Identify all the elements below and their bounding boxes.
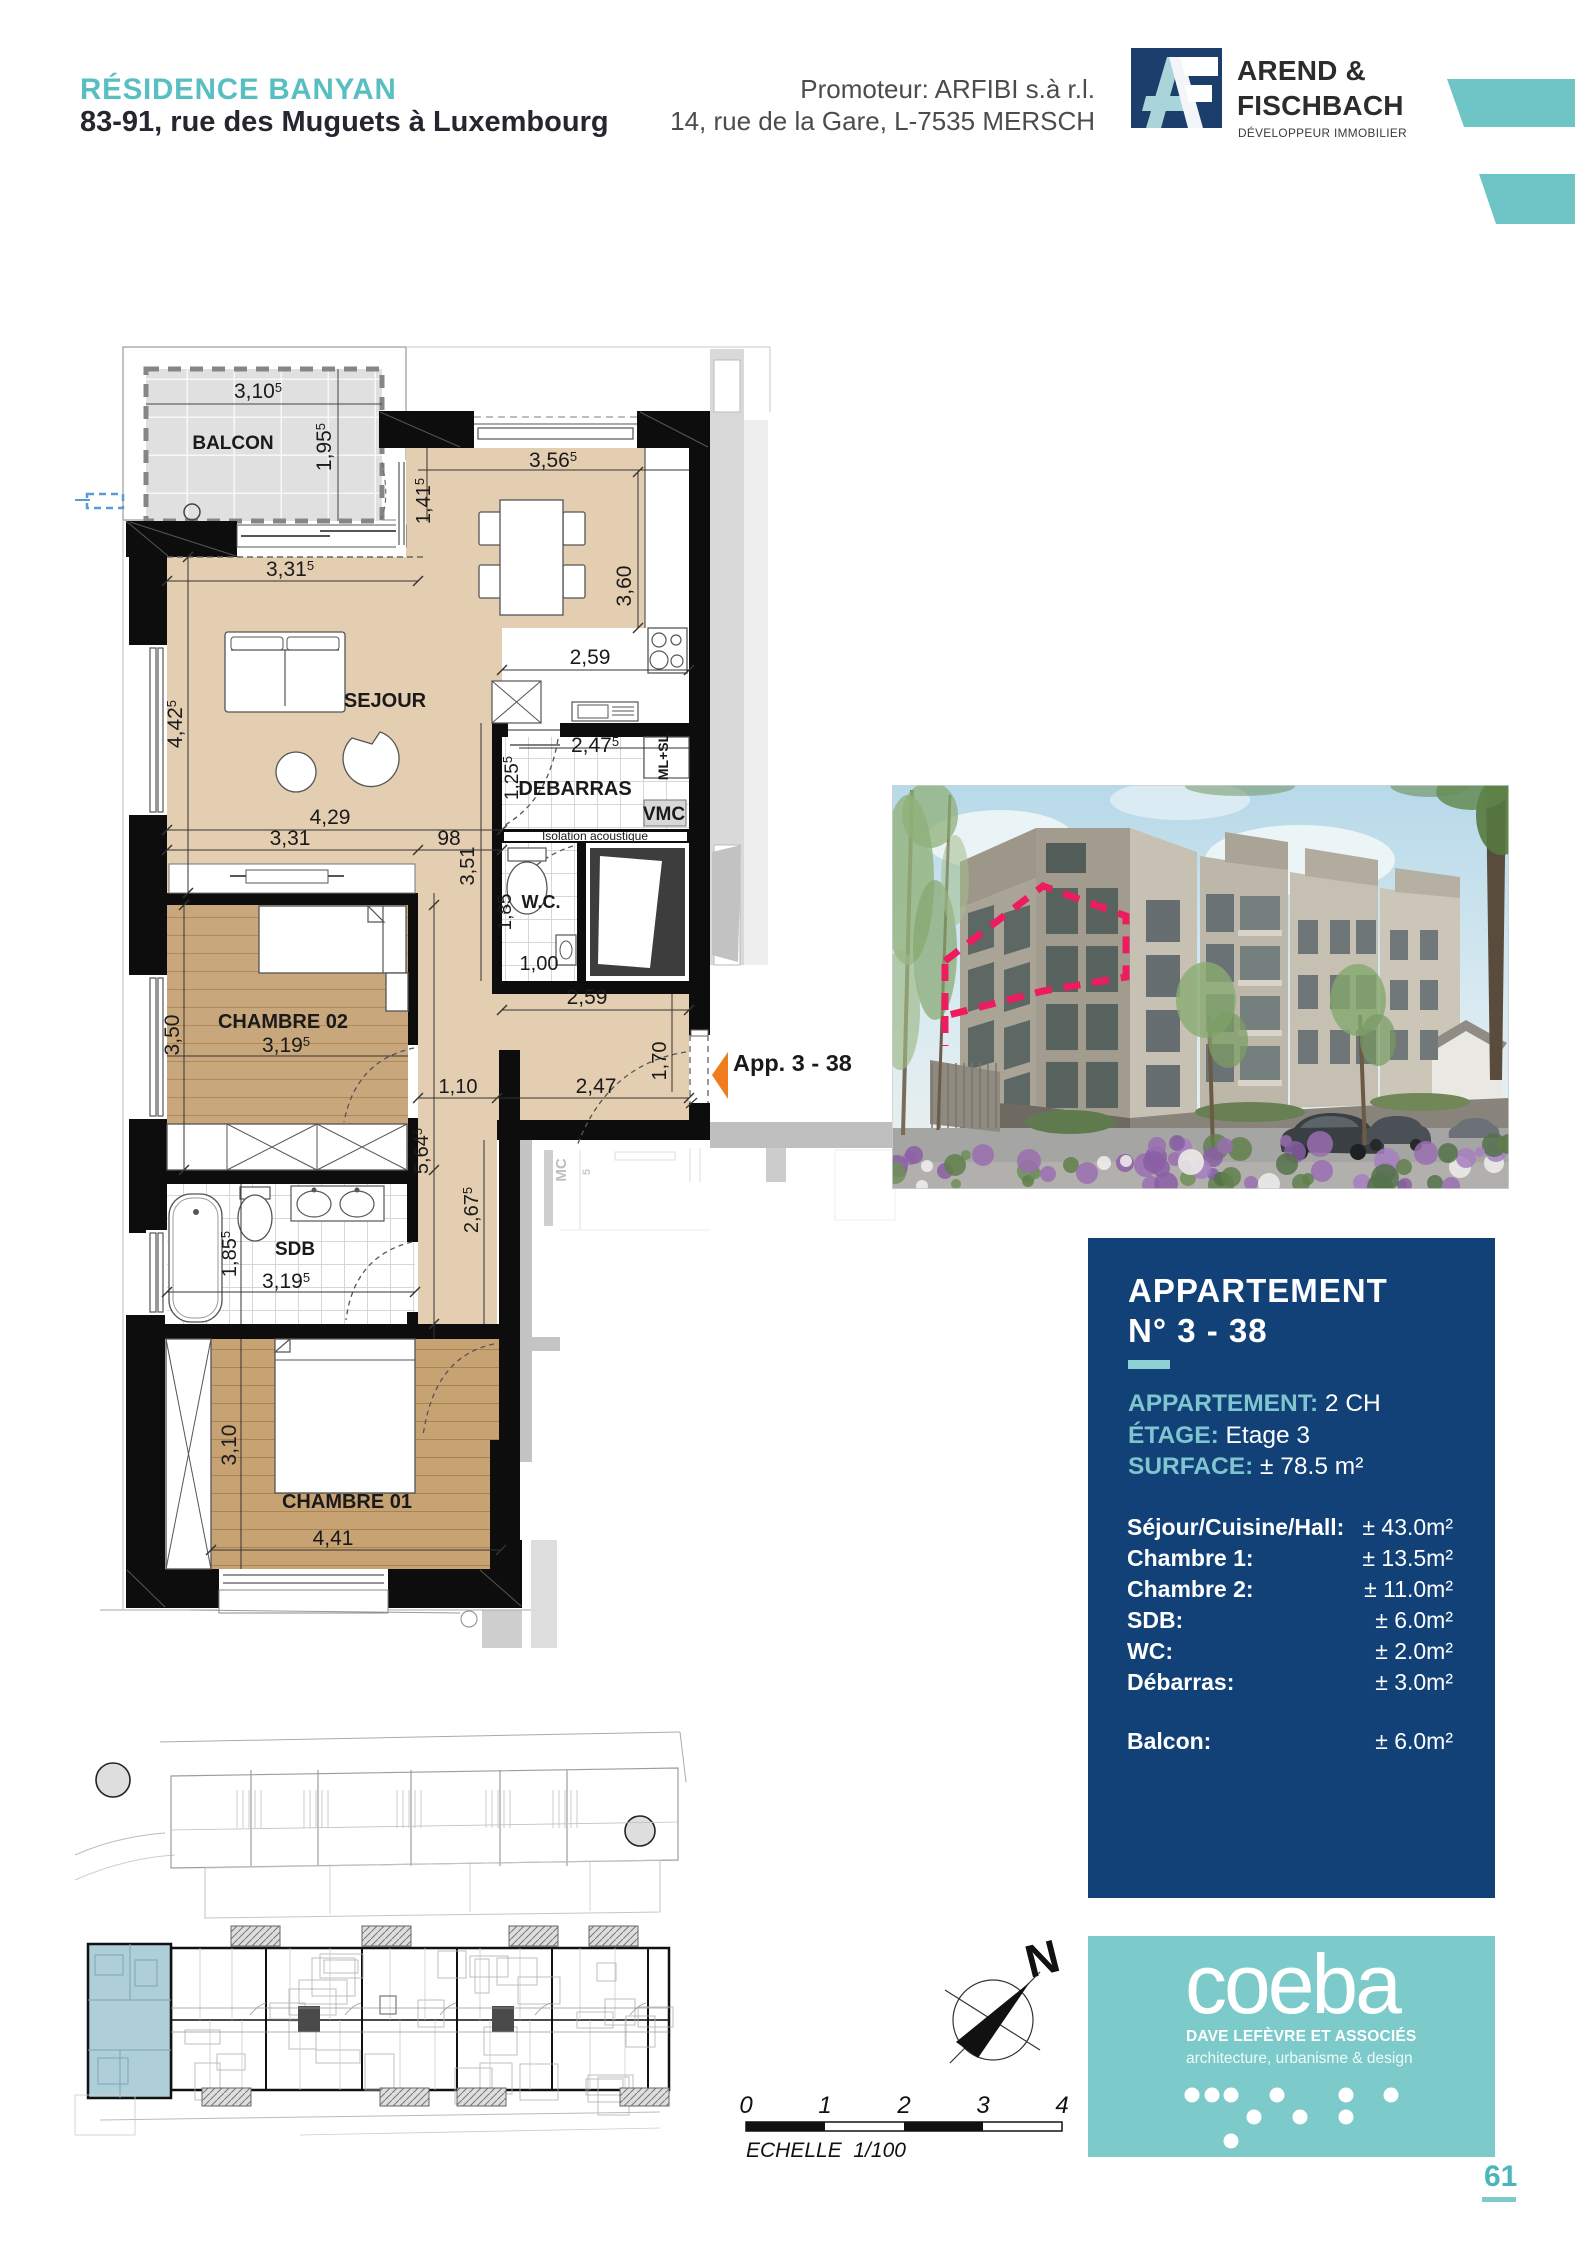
svg-text:5: 5 [581,1169,593,1175]
svg-text:W.C.: W.C. [522,892,561,912]
svg-text:3,50: 3,50 [161,1015,184,1056]
svg-text:1,00: 1,00 [520,953,559,975]
svg-text:4,29: 4,29 [310,806,351,829]
svg-text:4: 4 [1055,2092,1068,2119]
svg-text:2,59: 2,59 [570,646,611,669]
svg-text:Isolation acoustique: Isolation acoustique [542,829,648,843]
svg-text:App. 3 - 38: App. 3 - 38 [733,1050,852,1076]
svg-text:2: 2 [896,2092,910,2119]
svg-text:ML+SL: ML+SL [655,733,671,780]
svg-text:CHAMBRE 02: CHAMBRE 02 [218,1011,348,1033]
svg-text:DEBARRAS: DEBARRAS [518,778,631,800]
svg-text:2,47: 2,47 [576,1075,617,1098]
svg-text:1: 1 [818,2092,831,2119]
svg-text:1,10: 1,10 [439,1076,478,1098]
svg-text:3,60: 3,60 [613,566,636,607]
svg-text:SDB: SDB [275,1239,315,1260]
svg-text:1,70: 1,70 [649,1042,671,1081]
svg-text:0: 0 [739,2092,753,2119]
svg-text:4,41: 4,41 [313,1527,354,1550]
svg-text:3,31: 3,31 [270,827,311,850]
svg-text:BALCON: BALCON [192,433,273,454]
svg-text:3: 3 [976,2092,990,2119]
svg-text:ECHELLE 1/100: ECHELLE 1/100 [746,2139,906,2162]
svg-text:CHAMBRE 01: CHAMBRE 01 [282,1491,412,1513]
svg-text:2,59: 2,59 [567,986,608,1009]
svg-text:3,51: 3,51 [457,847,479,886]
svg-text:3,10: 3,10 [218,1425,241,1466]
svg-text:MC: MC [553,1158,570,1181]
svg-text:VMC: VMC [643,804,686,825]
svg-text:SEJOUR: SEJOUR [344,690,427,712]
svg-text:1,85: 1,85 [495,894,516,931]
svg-text:N: N [1020,1929,1065,1987]
